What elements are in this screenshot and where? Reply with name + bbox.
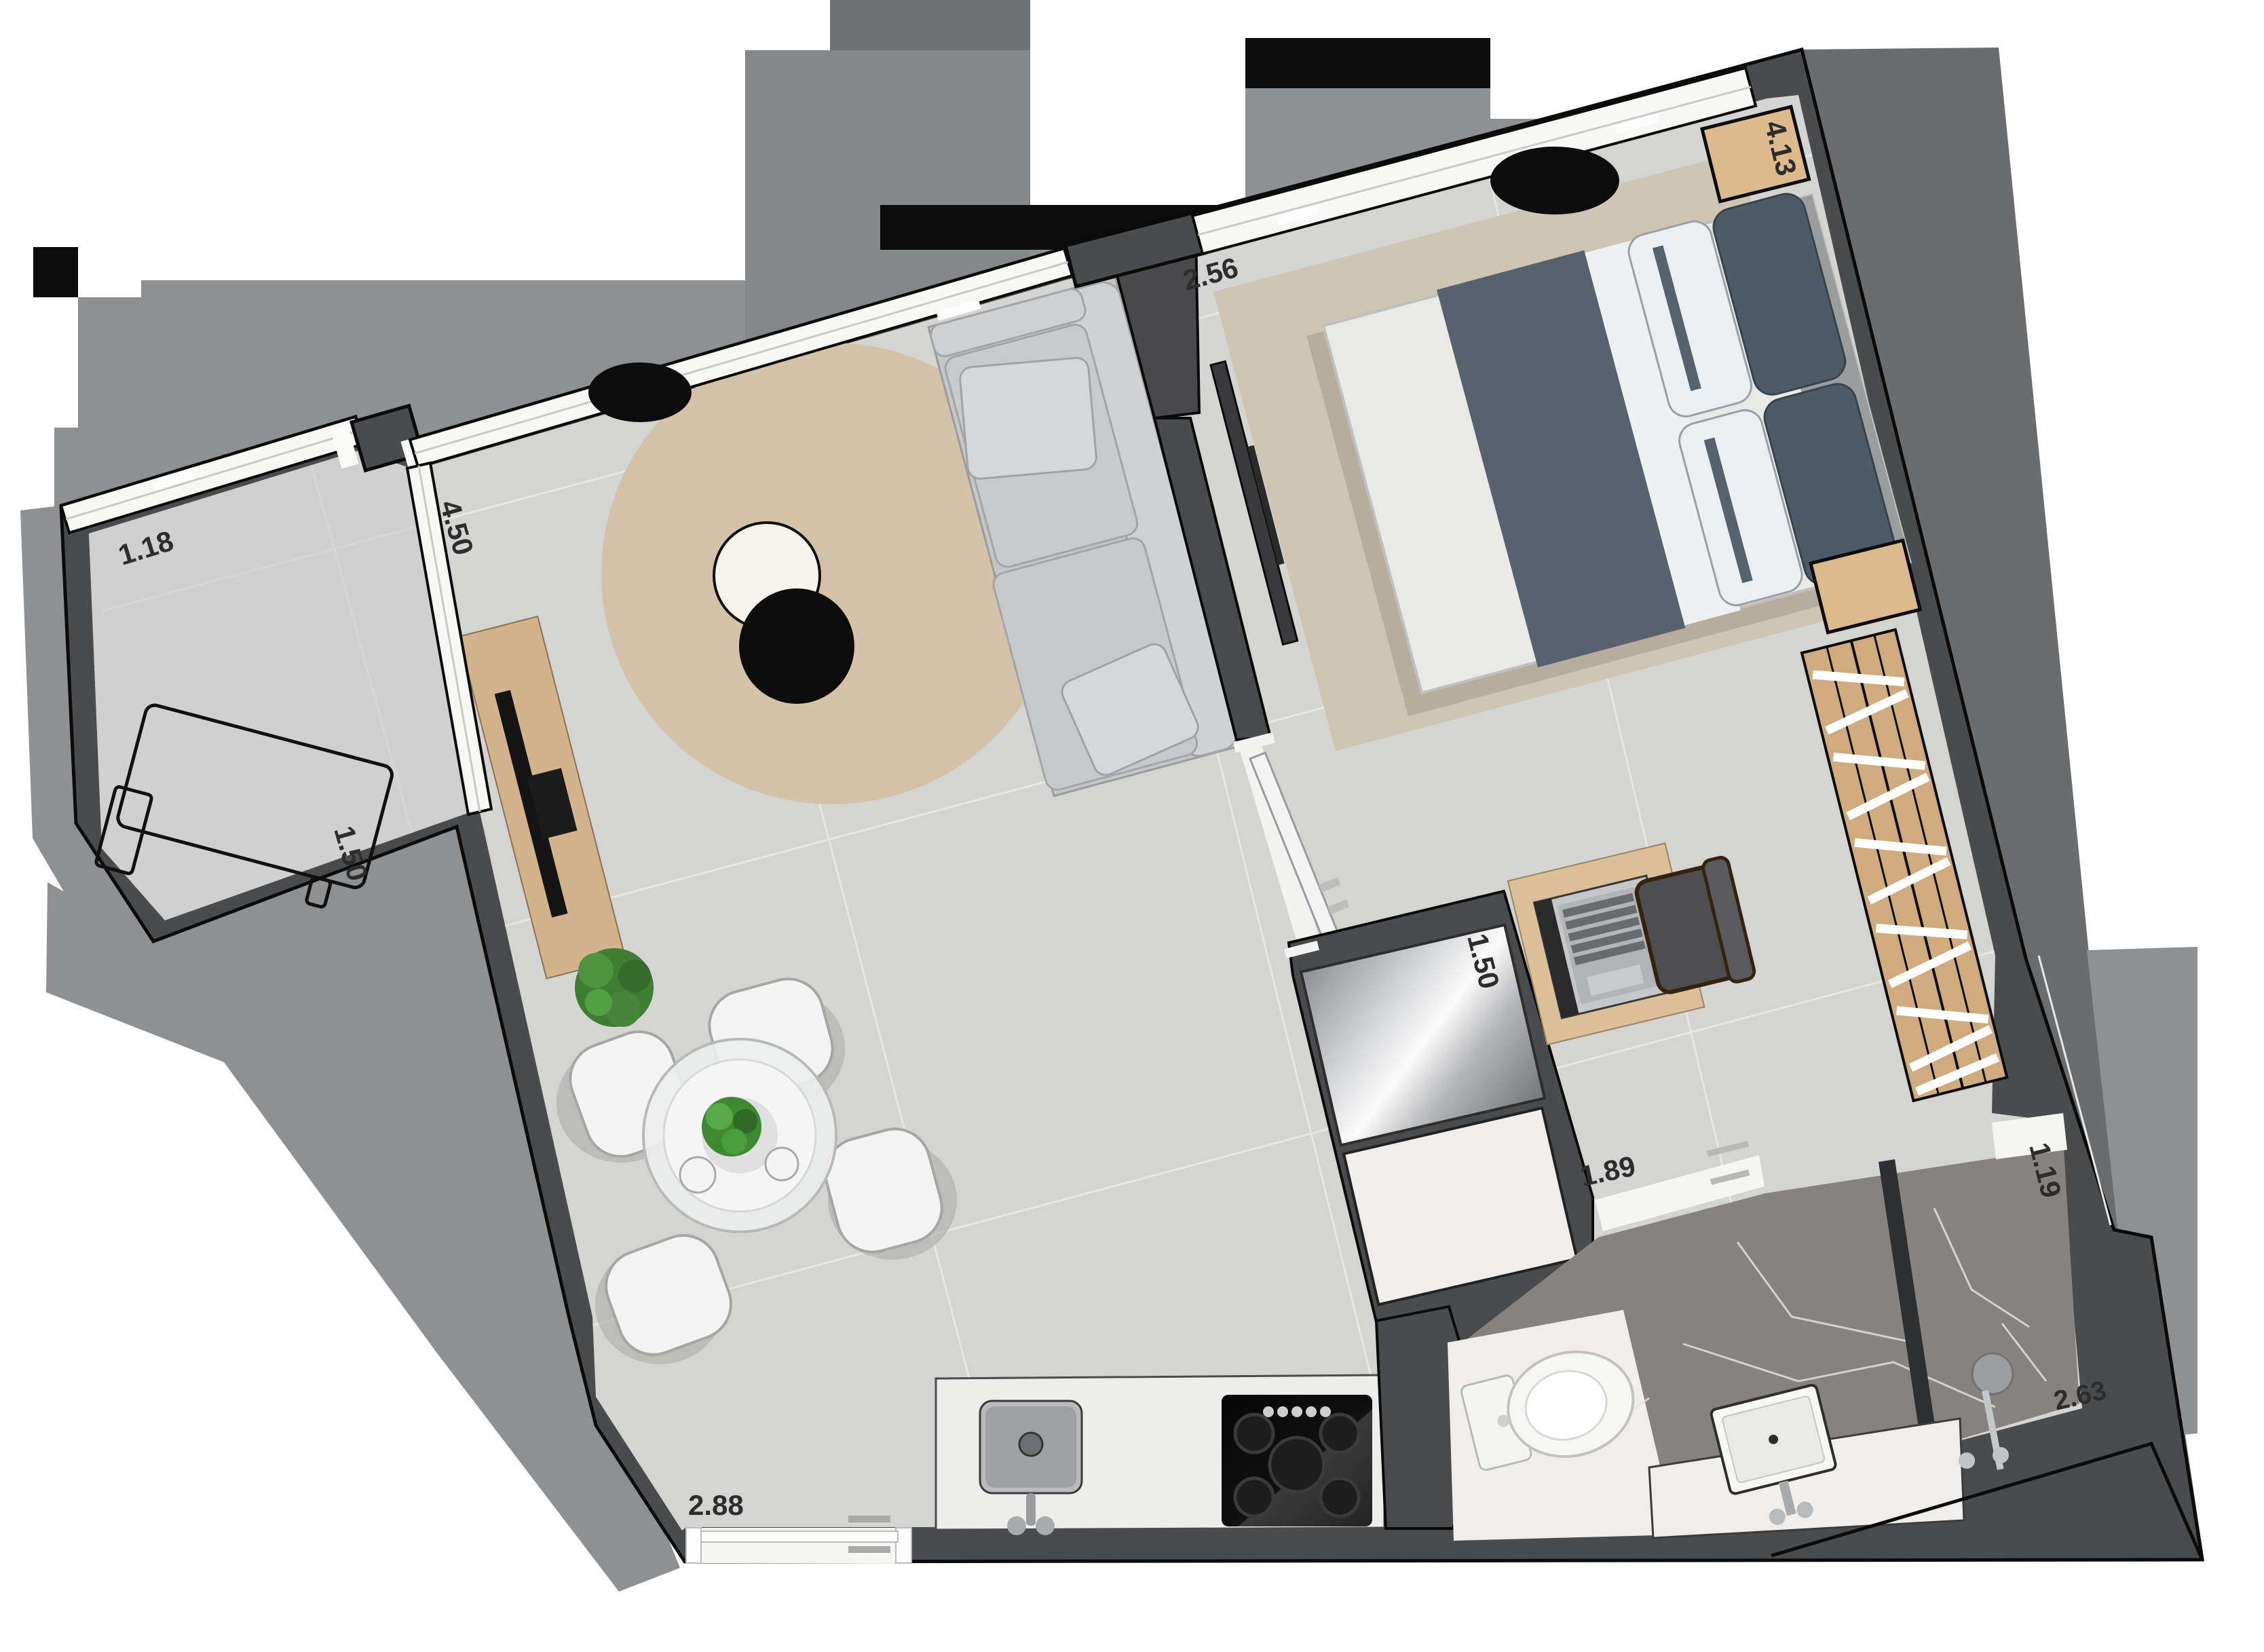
svg-text:2.88: 2.88 — [688, 1489, 744, 1521]
